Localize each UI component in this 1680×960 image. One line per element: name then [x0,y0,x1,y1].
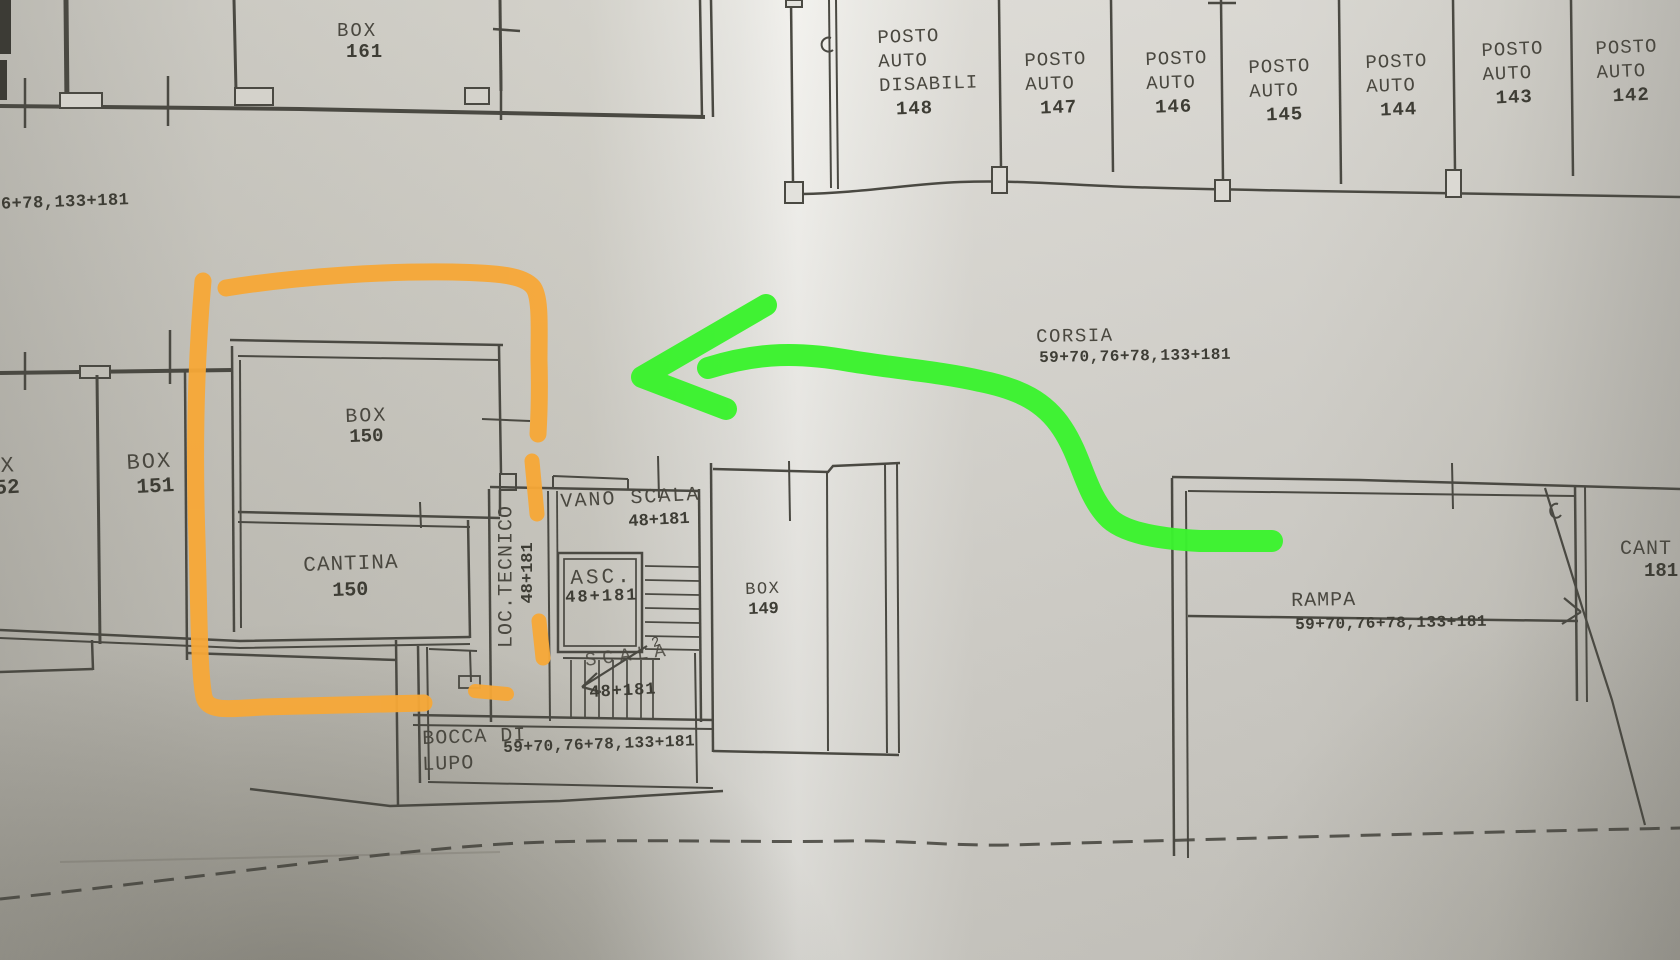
room-label-loc-tecnico: LOC.TECNICO [497,497,518,657]
rampa-label: RAMPA [1291,590,1356,612]
parking-144-line2: AUTO [1366,73,1429,99]
parking-147-line2: AUTO [1025,71,1088,97]
room-label-box-152-partial: X [0,454,14,478]
parking-148-line2: AUTO [878,47,978,74]
parking-146-line2: AUTO [1146,70,1209,96]
room-label-box-161: BOX [337,22,377,42]
parking-147-line1: POSTO [1024,47,1087,73]
box-row-middle-left [0,330,470,806]
plan-linework [0,0,1680,960]
room-label-cantina-181-partial: CANT [1620,539,1672,560]
parking-144-number: 144 [1367,97,1430,123]
parking-145-line2: AUTO [1249,78,1312,104]
parking-spot-145: POSTO AUTO 145 [1248,54,1312,128]
floor-plan-photo: 76+78,133+181 BOX 161 POSTO AUTO DISABIL… [0,0,1680,960]
parking-spot-147: POSTO AUTO 147 [1024,47,1088,121]
room-number-box-152-partial: 52 [0,478,20,501]
parking-spot-146: POSTO AUTO 146 [1145,46,1209,120]
room-label-box-149: BOX [745,581,781,600]
parking-142-line2: AUTO [1596,58,1659,85]
parking-spot-144: POSTO AUTO 144 [1365,49,1429,123]
room-label-box-151: BOX [126,450,173,475]
parking-146-line1: POSTO [1145,46,1208,72]
parking-142-line1: POSTO [1595,34,1658,61]
parking-spot-143: POSTO AUTO 143 [1481,36,1546,111]
scala-dimensions: 48+181 [589,681,657,702]
parking-144-line1: POSTO [1365,49,1428,75]
parking-146-number: 146 [1147,94,1210,120]
ramp-block [1172,463,1680,858]
parking-143-number: 143 [1483,84,1546,111]
parking-142-number: 142 [1597,82,1660,109]
rampa-dimensions: 59+70,76+78,133+181 [1295,614,1487,634]
room-number-box-151: 151 [136,476,175,500]
room-number-box-149: 149 [748,601,779,620]
parking-143-line2: AUTO [1482,60,1545,87]
room-number-cantina-150: 150 [332,580,369,602]
dashed-boundary-line [0,828,1680,899]
vano-scala-dimensions: 48+181 [628,511,690,532]
corsia-label: CORSIA [1036,327,1114,348]
parking-145-number: 145 [1250,102,1313,128]
box149-linework [713,461,900,755]
parking-143-line1: POSTO [1481,36,1544,63]
asc-dimensions: 48+181 [565,587,639,607]
bocca-di-lupo-line2: LUPO [422,753,475,776]
parking-145-line1: POSTO [1248,54,1311,80]
loc-tecnico-dimensions: 48+181 [520,533,538,613]
room-number-box-150: 150 [349,427,384,448]
room-number-cantina-181-partial: 181 [1644,562,1678,582]
box150-cantina-block [185,340,530,660]
parking-spot-148: POSTO AUTO DISABILI 148 [877,23,980,122]
room-label-cantina-150: CANTINA [303,553,399,578]
parking-spot-142: POSTO AUTO 142 [1595,34,1660,109]
parking-148-number: 148 [880,94,980,121]
corsia-dimensions: 59+70,76+78,133+181 [1039,347,1231,367]
parking-147-number: 147 [1026,95,1089,121]
room-number-box-161: 161 [346,43,383,63]
parking-148-line1: POSTO [877,23,977,50]
parking-148-line3: DISABILI [879,71,979,98]
